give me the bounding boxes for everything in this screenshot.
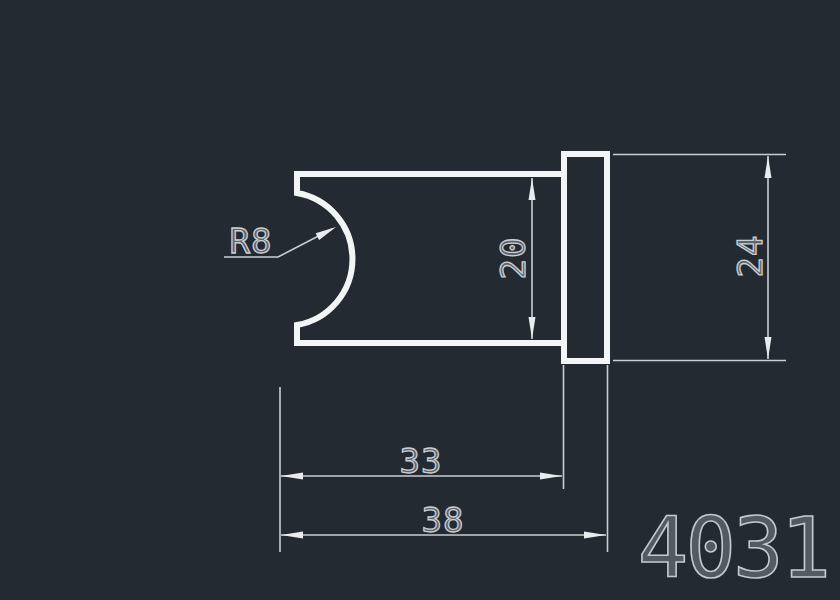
dim-33-arrow-right [540,473,562,480]
body-length-dimension-label: 33 [379,444,463,478]
radius-label: R8 [209,224,293,258]
overall-length-dimension-label: 38 [401,503,485,537]
dim-20-arrow-down [529,317,536,339]
part-outline [297,154,607,361]
leader-arrow-r8 [316,227,336,240]
part-number: 4031 [633,506,833,590]
dim-38-arrow-left [281,532,303,539]
dimension-arrows [281,156,772,539]
flange-height-dimension-label: 24 [733,214,767,298]
dim-38-arrow-right [584,532,606,539]
dim-20-arrow-up [529,178,536,200]
dim-24-arrow-down [765,337,772,359]
dim-24-arrow-up [765,156,772,178]
body-height-dimension-label: 20 [496,216,530,300]
cad-drawing-canvas: R8 20 24 33 38 4031 [0,0,840,600]
dim-33-arrow-left [281,473,303,480]
dimension-lines [224,155,786,553]
part-flange-outline [564,154,607,361]
